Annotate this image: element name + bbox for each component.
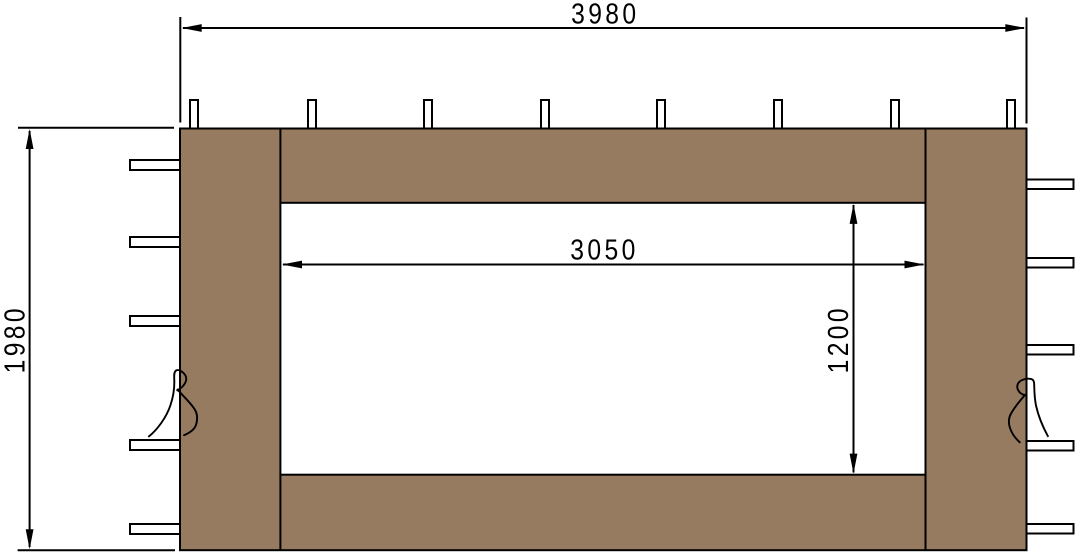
svg-text:3050: 3050 [570, 234, 638, 266]
svg-text:3980: 3980 [571, 0, 639, 30]
svg-text:1980: 1980 [0, 305, 31, 373]
svg-text:1200: 1200 [822, 305, 854, 373]
